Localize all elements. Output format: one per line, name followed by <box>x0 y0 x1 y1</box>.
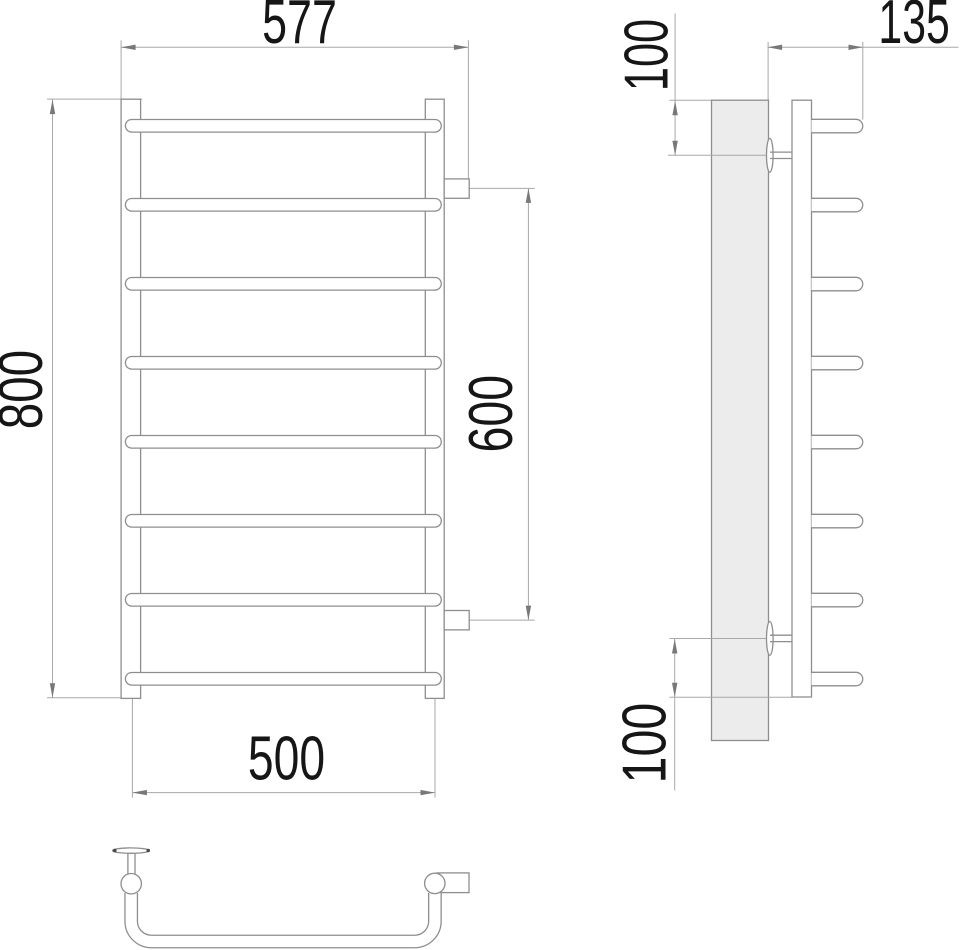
svg-text:500: 500 <box>248 725 325 794</box>
svg-text:800: 800 <box>0 350 56 429</box>
svg-text:100: 100 <box>613 19 682 91</box>
svg-text:135: 135 <box>878 0 949 57</box>
svg-text:100: 100 <box>611 703 680 784</box>
svg-text:577: 577 <box>262 0 337 57</box>
svg-text:600: 600 <box>457 375 526 453</box>
